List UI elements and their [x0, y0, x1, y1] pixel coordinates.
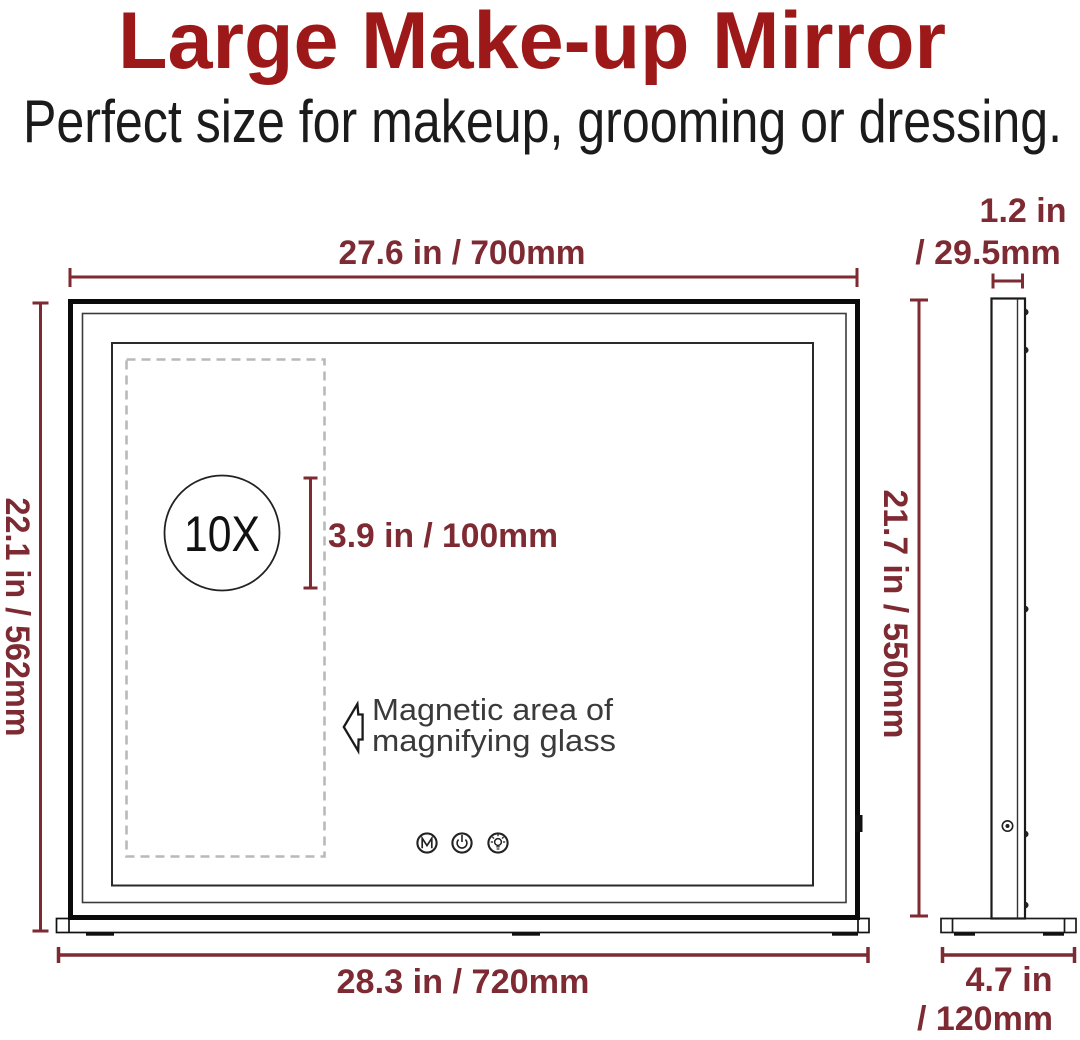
svg-text:Perfect size for makeup, groom: Perfect size for makeup, grooming or dre…	[23, 88, 1062, 155]
svg-text:magnifying glass: magnifying glass	[372, 723, 616, 758]
svg-text:3.9 in / 100mm: 3.9 in / 100mm	[328, 517, 558, 555]
svg-text:22.1 in / 562mm: 22.1 in / 562mm	[0, 498, 36, 737]
svg-text:/ 29.5mm: / 29.5mm	[915, 234, 1061, 272]
svg-text:21.7 in / 550mm: 21.7 in / 550mm	[876, 490, 914, 739]
svg-text:4.7 in: 4.7 in	[966, 961, 1053, 999]
svg-text:Magnetic area of: Magnetic area of	[372, 692, 613, 727]
svg-text:28.3 in / 720mm: 28.3 in / 720mm	[337, 963, 590, 1001]
svg-text:27.6 in / 700mm: 27.6 in / 700mm	[339, 234, 586, 272]
svg-text:10X: 10X	[184, 506, 260, 562]
svg-text:/ 120mm: / 120mm	[917, 1000, 1053, 1038]
svg-text:1.2 in: 1.2 in	[980, 192, 1067, 230]
svg-text:Large Make-up Mirror: Large Make-up Mirror	[118, 0, 946, 86]
